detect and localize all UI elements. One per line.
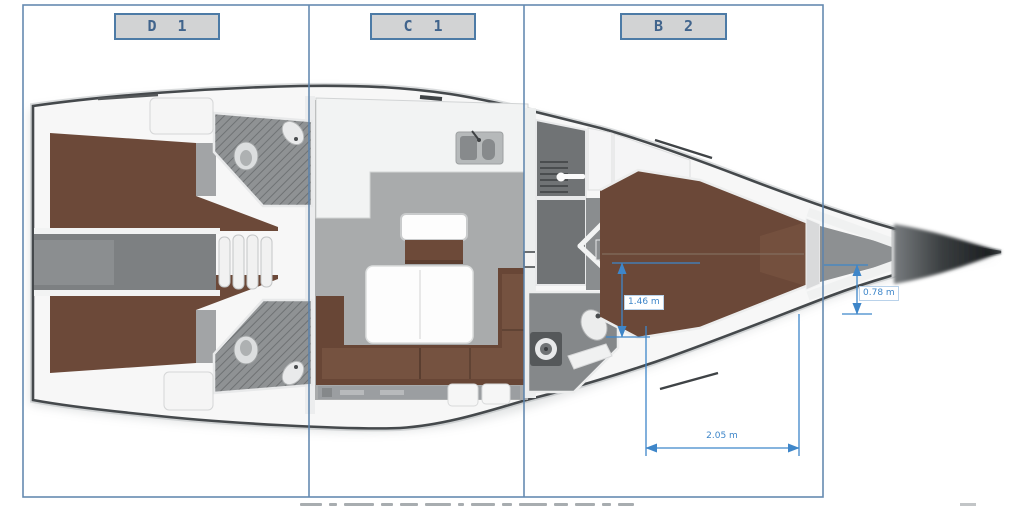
caption-fragment xyxy=(381,503,393,506)
cockpit-locker xyxy=(448,384,478,406)
cockpit-locker xyxy=(482,384,510,404)
caption-fragment xyxy=(400,503,418,506)
bow-tip xyxy=(894,224,1002,284)
stove-vent xyxy=(420,97,442,99)
aft-locker-starboard xyxy=(164,372,213,410)
forward-locker xyxy=(588,128,612,190)
forward-shower xyxy=(536,120,586,285)
caption-fragment xyxy=(425,503,451,506)
caption-fragment xyxy=(575,503,595,506)
caption-fragment xyxy=(602,503,611,506)
zone-label-c1[interactable]: C 1 xyxy=(370,13,476,40)
dimension-label-bow-berth-width: 0.78 m xyxy=(859,286,899,301)
jib-track-fwd-starboard xyxy=(660,373,718,389)
dimension-label-cabin-width: 1.46 m xyxy=(624,295,664,310)
cropped-caption-corner xyxy=(960,503,976,506)
caption-fragment xyxy=(519,503,547,506)
caption-fragment xyxy=(471,503,495,506)
caption-fragment xyxy=(344,503,374,506)
salon-seat-cushion xyxy=(401,214,467,240)
caption-fragment xyxy=(502,503,512,506)
cropped-caption xyxy=(300,499,710,509)
companionway-wall-bottom xyxy=(34,290,220,296)
caption-fragment xyxy=(554,503,568,506)
companionway-floor-light xyxy=(34,240,114,285)
caption-fragment xyxy=(300,503,322,506)
caption-fragment xyxy=(329,503,337,506)
berth-footboard xyxy=(806,218,820,290)
yacht-layout-diagram: D 1 C 1 B 2 1.46 m 0.78 m 2.05 m xyxy=(0,0,1024,509)
zone-label-b2[interactable]: B 2 xyxy=(620,13,727,40)
aft-locker-port xyxy=(150,98,213,134)
forward-section xyxy=(524,108,1002,398)
companionway-wall-top xyxy=(34,228,220,234)
galley-sink xyxy=(456,131,503,164)
caption-fragment xyxy=(458,503,464,506)
salon-table xyxy=(366,266,473,343)
dimension-label-berth-length: 2.05 m xyxy=(700,430,744,443)
zone-label-d1[interactable]: D 1 xyxy=(114,13,220,40)
salon xyxy=(315,98,528,406)
yacht-floorplan-graphic xyxy=(0,0,1024,509)
caption-fragment xyxy=(618,503,634,506)
